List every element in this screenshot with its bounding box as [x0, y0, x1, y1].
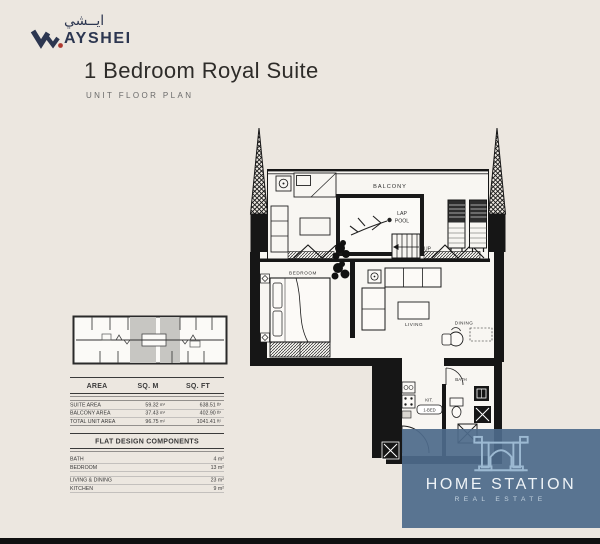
component-row-bedroom: BEDROOM13 m² — [70, 464, 224, 472]
bedroom: BEDROOM — [261, 271, 331, 358]
logo-red-dot — [58, 43, 63, 48]
sofa — [385, 268, 441, 287]
brochure-page: ايــشي AYSHEI 1 Bedroom Royal Suite UNIT… — [0, 0, 600, 544]
component-row-bath: BATH4 m² — [70, 455, 224, 463]
logo-arabic: ايــشي — [64, 14, 132, 29]
arch-icon — [472, 435, 530, 475]
table-row-total-area: TOTAL UNIT AREA 96.75m² 1041.41ft² — [70, 418, 224, 426]
stove — [402, 395, 415, 408]
component-row-kitchen: KITCHEN9 m² — [70, 485, 224, 493]
kitchen-label: KIT. — [425, 398, 433, 403]
logo-name: AYSHEI — [64, 30, 132, 48]
watermark-tagline: REAL ESTATE — [455, 495, 547, 503]
components-title: FLAT DESIGN COMPONENTS — [70, 434, 224, 448]
area-table-header: AREA SQ. M SQ. FT — [70, 378, 224, 393]
right-spire-icon — [489, 128, 506, 252]
col-header-area: AREA — [70, 382, 124, 390]
component-row-living-dining: LIVING & DINING23 m² — [70, 476, 224, 485]
floor-plan: BALCONY LAP — [248, 126, 508, 468]
page-subtitle: UNIT FLOOR PLAN — [86, 91, 193, 100]
balcony-label: BALCONY — [373, 184, 407, 190]
lap-pool-label-line2: POOL — [395, 219, 410, 225]
col-header-sqm: SQ. M — [124, 382, 172, 390]
table-row-suite-area: SUITE AREA 59.32m² 638.51ft² — [70, 401, 224, 409]
coffee-table — [398, 302, 429, 319]
ayshei-logo-icon — [30, 24, 64, 54]
col-header-sqft: SQ. FT — [172, 382, 224, 390]
watermark-name: HOME STATION — [426, 476, 577, 494]
up-label: UP — [424, 247, 432, 253]
building-key-plan — [72, 311, 228, 370]
area-tables: AREA SQ. M SQ. FT SUITE AREA 59.32m² 638… — [70, 377, 224, 493]
toilet — [450, 398, 463, 406]
table-row-balcony-area: BALCONY AREA 37.43m² 402.90ft² — [70, 409, 224, 417]
ayshei-logo-text: ايــشي AYSHEI — [64, 14, 132, 48]
unit-type-label: 1-BED — [423, 408, 435, 413]
dining-label: DINING — [455, 321, 474, 326]
bed — [270, 278, 330, 342]
bedroom-label: BEDROOM — [289, 271, 317, 276]
home-station-watermark: HOME STATION REAL ESTATE — [402, 429, 600, 528]
bottom-border-bar — [0, 538, 600, 544]
lap-pool-label-line1: LAP — [397, 211, 407, 217]
left-spire-icon — [251, 128, 268, 252]
page-title: 1 Bedroom Royal Suite — [84, 58, 319, 84]
living-label: LIVING — [405, 322, 423, 327]
